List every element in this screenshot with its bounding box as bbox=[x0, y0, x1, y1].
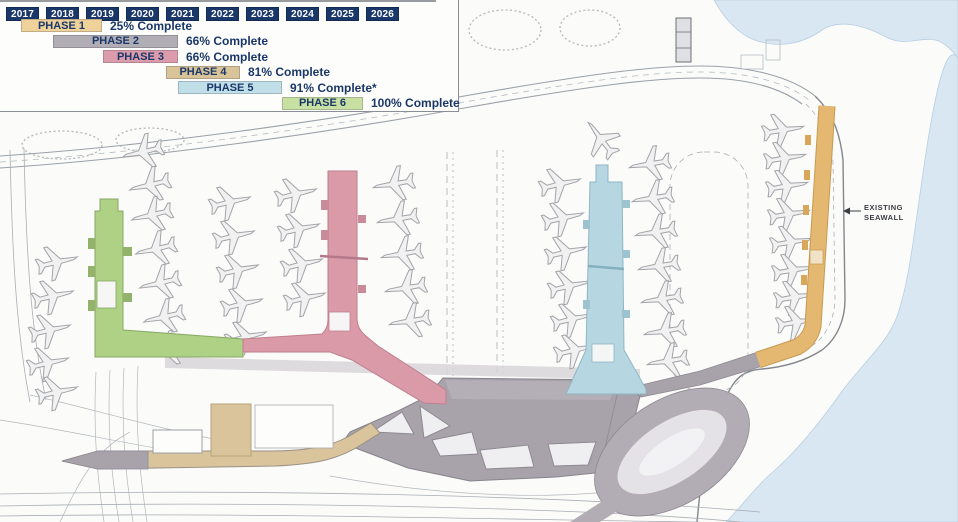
phase-status: 66% Complete bbox=[186, 35, 268, 48]
year-badge: 2025 bbox=[326, 7, 359, 21]
legend-top-rule bbox=[0, 0, 436, 2]
phase-status: 25% Complete bbox=[110, 19, 192, 32]
phase-bar: PHASE 6 bbox=[282, 97, 363, 110]
airfield-building bbox=[676, 18, 691, 62]
phase-status: 91% Complete* bbox=[290, 81, 377, 94]
phase-bar: PHASE 3 bbox=[103, 50, 178, 63]
year-badge: 2024 bbox=[286, 7, 319, 21]
year-badge: 2026 bbox=[366, 7, 399, 21]
year-badge: 2022 bbox=[206, 7, 239, 21]
phase-status: 66% Complete bbox=[186, 50, 268, 63]
phase-bar: PHASE 4 bbox=[166, 66, 240, 79]
parking-garage bbox=[211, 404, 251, 456]
airport-phasing-plan: EXISTING SEAWALL 20172018201920202021202… bbox=[0, 0, 958, 522]
phase-status: 100% Complete bbox=[371, 97, 460, 110]
phase-status: 81% Complete bbox=[248, 66, 330, 79]
phase-bar: PHASE 2 bbox=[53, 35, 178, 48]
phase-bar: PHASE 1 bbox=[21, 19, 102, 32]
legend-panel: 2017201820192020202120222023202420252026… bbox=[0, 0, 459, 112]
phase-bar: PHASE 5 bbox=[178, 81, 282, 94]
seawall-label-line2: SEAWALL bbox=[864, 213, 904, 222]
seawall-label-line1: EXISTING bbox=[864, 203, 903, 212]
year-badge: 2023 bbox=[246, 7, 279, 21]
